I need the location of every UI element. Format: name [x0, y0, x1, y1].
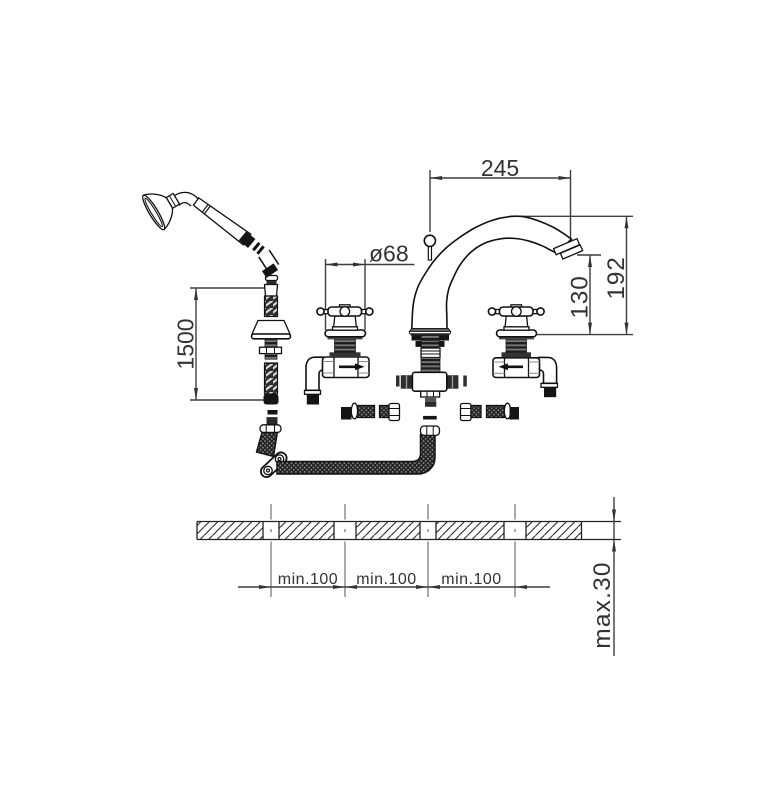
svg-text:max.30: max.30 — [589, 561, 616, 649]
svg-text:192: 192 — [603, 256, 630, 299]
svg-text:min.100: min.100 — [441, 571, 501, 588]
svg-text:1500: 1500 — [173, 318, 199, 369]
svg-text:min.100: min.100 — [356, 571, 416, 588]
svg-text:ø68: ø68 — [369, 241, 409, 267]
svg-text:min.100: min.100 — [278, 571, 338, 588]
svg-text:245: 245 — [481, 155, 519, 181]
svg-text:130: 130 — [567, 275, 594, 318]
